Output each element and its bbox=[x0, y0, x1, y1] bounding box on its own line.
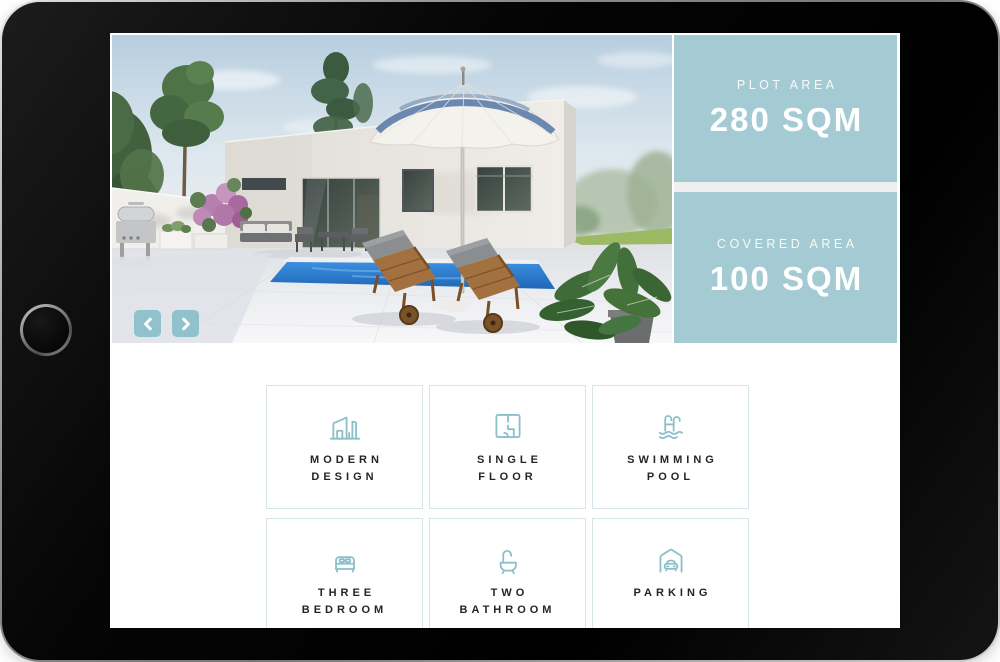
plot-area-panel: PLOT AREA 280 SQM bbox=[674, 35, 897, 182]
feature-label: THREE BEDROOM bbox=[302, 585, 387, 619]
feature-card-swimming-pool: SWIMMING POOL bbox=[592, 385, 749, 509]
feature-label: PARKING bbox=[630, 585, 712, 602]
covered-area-label: COVERED AREA bbox=[713, 237, 857, 251]
garage-car-icon bbox=[652, 542, 690, 576]
carousel-next-button[interactable] bbox=[172, 310, 199, 337]
feature-label: SINGLE FLOOR bbox=[473, 452, 542, 486]
app-screen: PLOT AREA 280 SQM COVERED AREA 100 SQM bbox=[110, 33, 900, 628]
home-button[interactable] bbox=[20, 304, 72, 356]
feature-label: SWIMMING POOL bbox=[623, 452, 718, 486]
covered-area-panel: COVERED AREA 100 SQM bbox=[674, 192, 897, 343]
feature-card-modern-design: MODERN DESIGN bbox=[266, 385, 423, 509]
plot-area-label: PLOT AREA bbox=[733, 78, 837, 92]
chevron-left-icon bbox=[142, 317, 154, 331]
home-button-face bbox=[23, 307, 69, 353]
feature-card-parking: PARKING bbox=[592, 518, 749, 628]
feature-label: MODERN DESIGN bbox=[306, 452, 383, 486]
feature-label: TWO BATHROOM bbox=[460, 585, 556, 619]
plot-area-value: 280 SQM bbox=[708, 101, 863, 139]
house-photo-illustration bbox=[112, 35, 672, 343]
floor-plan-icon bbox=[489, 409, 527, 443]
property-photo bbox=[112, 35, 672, 343]
covered-area-value: 100 SQM bbox=[708, 260, 863, 298]
modern-house-icon bbox=[326, 409, 364, 443]
feature-grid: MODERN DESIGN SINGLE FLOOR bbox=[266, 385, 749, 628]
tablet-frame: PLOT AREA 280 SQM COVERED AREA 100 SQM bbox=[0, 0, 1000, 662]
feature-card-two-bathroom: TWO BATHROOM bbox=[429, 518, 586, 628]
stats-divider bbox=[674, 182, 897, 192]
bed-icon bbox=[326, 542, 364, 576]
stage: PLOT AREA 280 SQM COVERED AREA 100 SQM bbox=[0, 0, 1000, 662]
carousel-prev-button[interactable] bbox=[134, 310, 161, 337]
feature-card-single-floor: SINGLE FLOOR bbox=[429, 385, 586, 509]
feature-card-three-bedroom: THREE BEDROOM bbox=[266, 518, 423, 628]
swimming-pool-icon bbox=[652, 409, 690, 443]
chevron-right-icon bbox=[180, 317, 192, 331]
stats-column: PLOT AREA 280 SQM COVERED AREA 100 SQM bbox=[674, 35, 897, 343]
bathtub-icon bbox=[489, 542, 527, 576]
